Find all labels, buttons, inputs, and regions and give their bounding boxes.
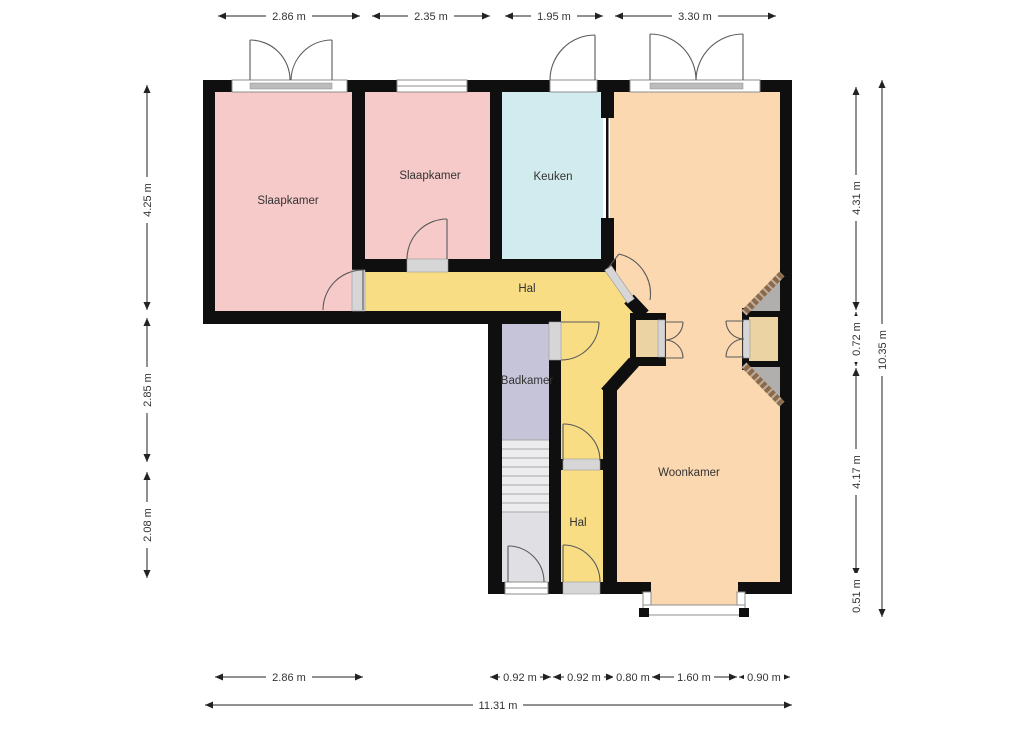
wall-bottom	[488, 582, 505, 594]
dim-bottom-1: 2.86 m	[272, 672, 306, 684]
dimensions-right: 4.31 m 0.72 m 4.17 m 0.51 m 10.35 m	[849, 80, 889, 619]
threshold-hal-split	[563, 459, 600, 470]
wall-between-bedrooms	[352, 92, 365, 270]
label-hal-top: Hal	[518, 283, 535, 295]
label-hal-bottom: Hal	[569, 517, 586, 529]
wall-kitchen-living-bottom	[601, 218, 614, 272]
wall-bathroom-right	[549, 311, 561, 322]
wall-rooms-south	[448, 259, 616, 272]
wall-right	[780, 80, 792, 594]
label-badkamer: Badkamer	[501, 375, 554, 387]
bay-corner-post	[739, 608, 749, 617]
keuken-door-arc	[550, 35, 595, 80]
door-keuken-opening	[550, 80, 597, 92]
threshold-badkamer	[549, 322, 561, 360]
french-door-arc-slaapkamer1	[250, 40, 290, 80]
closet-hal-threshold	[658, 320, 665, 357]
dim-bottom-2: 0.92 m	[503, 672, 537, 684]
bay-window-floor	[651, 582, 738, 608]
wall-living-left	[603, 390, 617, 594]
dim-left-1: 4.25 m	[142, 183, 154, 217]
label-woonkamer: Woonkamer	[658, 467, 720, 479]
threshold-slaapkamer2	[407, 259, 448, 272]
dim-top-3: 1.95 m	[537, 11, 571, 23]
label-keuken: Keuken	[533, 171, 572, 183]
dim-bottom-3: 0.92 m	[567, 672, 601, 684]
dim-right-2: 0.72 m	[851, 322, 863, 356]
french-door-arc-woonkamer	[650, 34, 696, 80]
wall-kitchen-living-top	[601, 92, 614, 118]
french-door-sill-woonkamer	[650, 83, 743, 89]
wall-bottom	[548, 582, 563, 594]
dim-bottom-total: 11.31 m	[479, 700, 518, 712]
dim-bottom-5: 1.60 m	[677, 672, 711, 684]
wall-kitchen-living-thin	[606, 118, 609, 218]
dim-bottom-4: 0.80 m	[616, 672, 650, 684]
wall-corridor-south	[203, 311, 561, 324]
vestibule-area	[502, 512, 549, 582]
wall-top	[467, 80, 550, 92]
closet-hal-inner	[636, 320, 658, 357]
french-door-arc-slaapkamer1	[291, 40, 332, 80]
wall-bedroom2-kitchen	[490, 92, 502, 259]
label-slaapkamer1: Slaapkamer	[257, 195, 319, 207]
label-slaapkamer2: Slaapkamer	[399, 170, 461, 182]
dimensions-bottom: 2.86 m 0.92 m 0.92 m 0.80 m 1.60 m 0.90 …	[205, 670, 792, 712]
closet-chimney-threshold	[743, 320, 750, 358]
wall-stairwell-left	[488, 311, 502, 594]
threshold-front-door	[563, 582, 600, 594]
wall-top	[597, 80, 630, 92]
staircase	[502, 440, 549, 582]
bay-window-front	[643, 605, 745, 615]
dim-right-total: 10.35 m	[877, 330, 889, 370]
bay-corner-post	[639, 608, 649, 617]
dim-left-3: 2.08 m	[142, 508, 154, 542]
french-door-arc-woonkamer	[696, 34, 743, 80]
dim-left-2: 2.85 m	[142, 373, 154, 407]
dim-bottom-6: 0.90 m	[747, 672, 781, 684]
french-door-sill-slaapkamer1	[250, 83, 332, 89]
wall-top	[347, 80, 397, 92]
floorplan-canvas: Slaapkamer Slaapkamer Keuken Hal Badkame…	[0, 0, 1024, 724]
floorplan-page: Slaapkamer Slaapkamer Keuken Hal Badkame…	[0, 0, 1024, 724]
dim-top-4: 3.30 m	[678, 11, 712, 23]
dim-right-3: 4.17 m	[851, 455, 863, 489]
closet-chimney-inner	[749, 317, 778, 361]
dimensions-left: 4.25 m 2.85 m 2.08 m	[140, 85, 154, 578]
dimensions-top: 2.86 m 2.35 m 1.95 m 3.30 m	[218, 9, 776, 23]
dim-right-1: 4.31 m	[851, 181, 863, 215]
dim-top-2: 2.35 m	[414, 11, 448, 23]
wall-bottom	[738, 582, 792, 594]
dim-right-4: 0.51 m	[851, 579, 863, 613]
dim-top-1: 2.86 m	[272, 11, 306, 23]
wall-left	[203, 80, 215, 324]
wall-bathroom-right	[549, 360, 561, 582]
